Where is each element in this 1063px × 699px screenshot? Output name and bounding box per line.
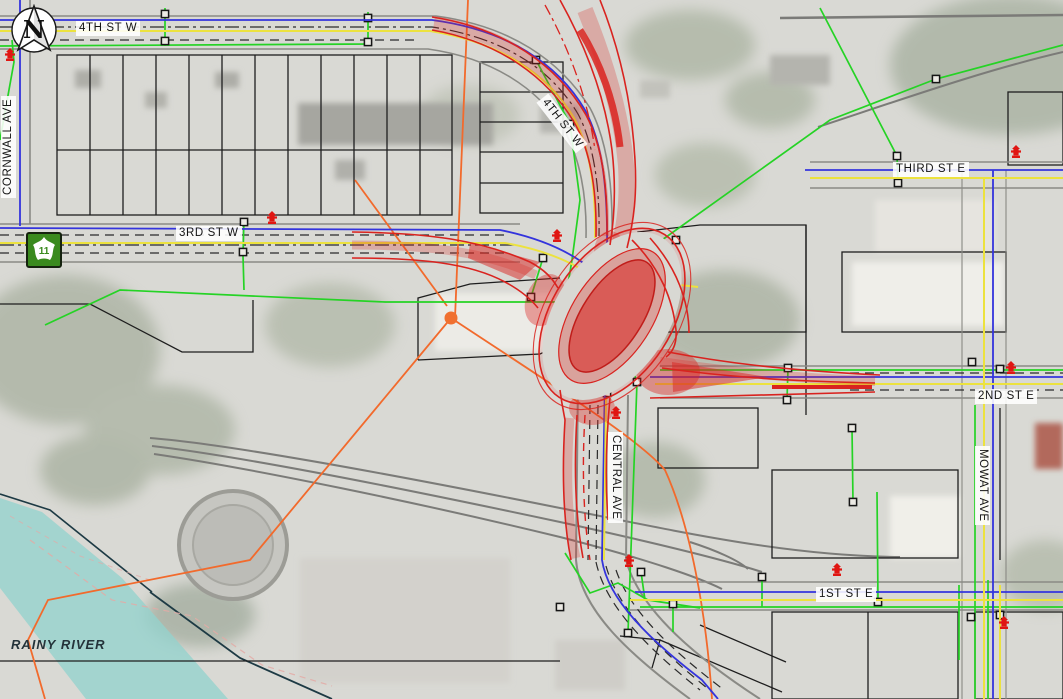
circular-tank xyxy=(179,491,287,599)
aerial-basemap xyxy=(0,0,1063,699)
street-label-2nd-st-e: 2ND ST E xyxy=(975,389,1037,404)
street-label-third-st-e: THIRD ST E xyxy=(893,162,969,177)
street-label-1st-st-e: 1ST ST E xyxy=(816,587,876,602)
street-label-4th-st-w: 4TH ST W xyxy=(76,21,140,36)
map-artwork xyxy=(0,0,1063,699)
hydro-pole-icon xyxy=(445,312,458,325)
street-label-cornwall-ave: CORNWALL AVE xyxy=(1,96,16,198)
route-number: 11 xyxy=(39,246,50,257)
north-letter: N xyxy=(23,15,45,44)
street-label-3rd-st-w: 3RD ST W xyxy=(176,226,242,241)
street-label-central-ave: CENTRAL AVE xyxy=(608,432,623,523)
water-label-rainy-river: RAINY RIVER xyxy=(8,637,109,652)
map-canvas[interactable]: N 11 4TH ST W 4TH ST W CORNWALL AVE 3RD … xyxy=(0,0,1063,699)
north-arrow-icon: N xyxy=(6,4,62,60)
highway-11-shield-icon: 11 xyxy=(26,232,62,268)
street-label-mowat-ave: MOWAT AVE xyxy=(975,446,990,525)
